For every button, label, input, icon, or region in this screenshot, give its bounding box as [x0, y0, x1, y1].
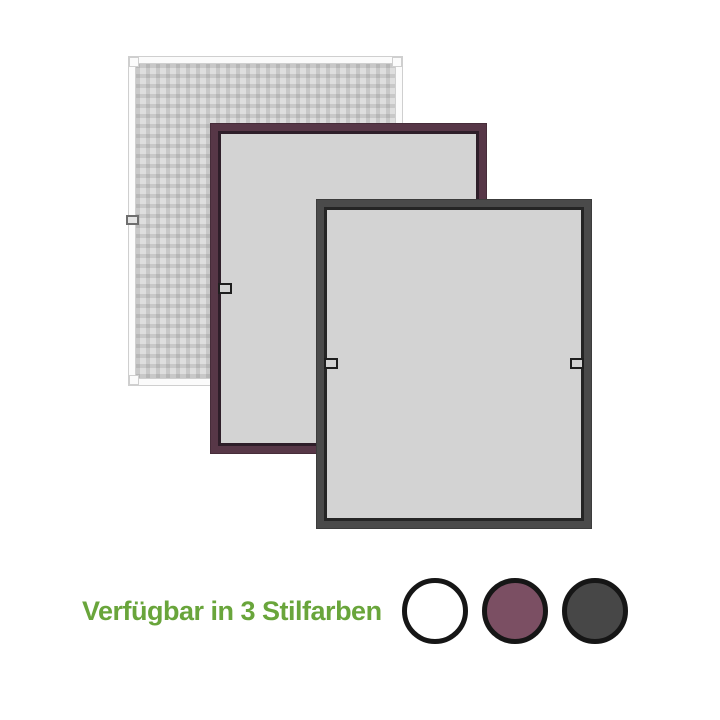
frame-corner-connector	[129, 375, 139, 385]
availability-row: Verfügbar in 3 Stilfarben	[82, 575, 628, 647]
pull-handle-icon	[570, 358, 584, 369]
swatch-bordeaux	[482, 578, 548, 644]
flyscreen-pane-anthracite	[324, 207, 584, 521]
color-swatches	[388, 578, 628, 644]
product-image: Verfügbar in 3 Stilfarben	[0, 0, 720, 720]
pull-handle-icon	[126, 215, 139, 225]
availability-text: Verfügbar in 3 Stilfarben	[82, 596, 382, 627]
swatch-anthracite	[562, 578, 628, 644]
frame-corner-connector	[392, 57, 402, 67]
pull-handle-icon	[218, 283, 232, 294]
pull-handle-icon	[324, 358, 338, 369]
swatch-white	[402, 578, 468, 644]
frame-corner-connector	[129, 57, 139, 67]
flyscreen-window-anthracite	[316, 199, 592, 529]
